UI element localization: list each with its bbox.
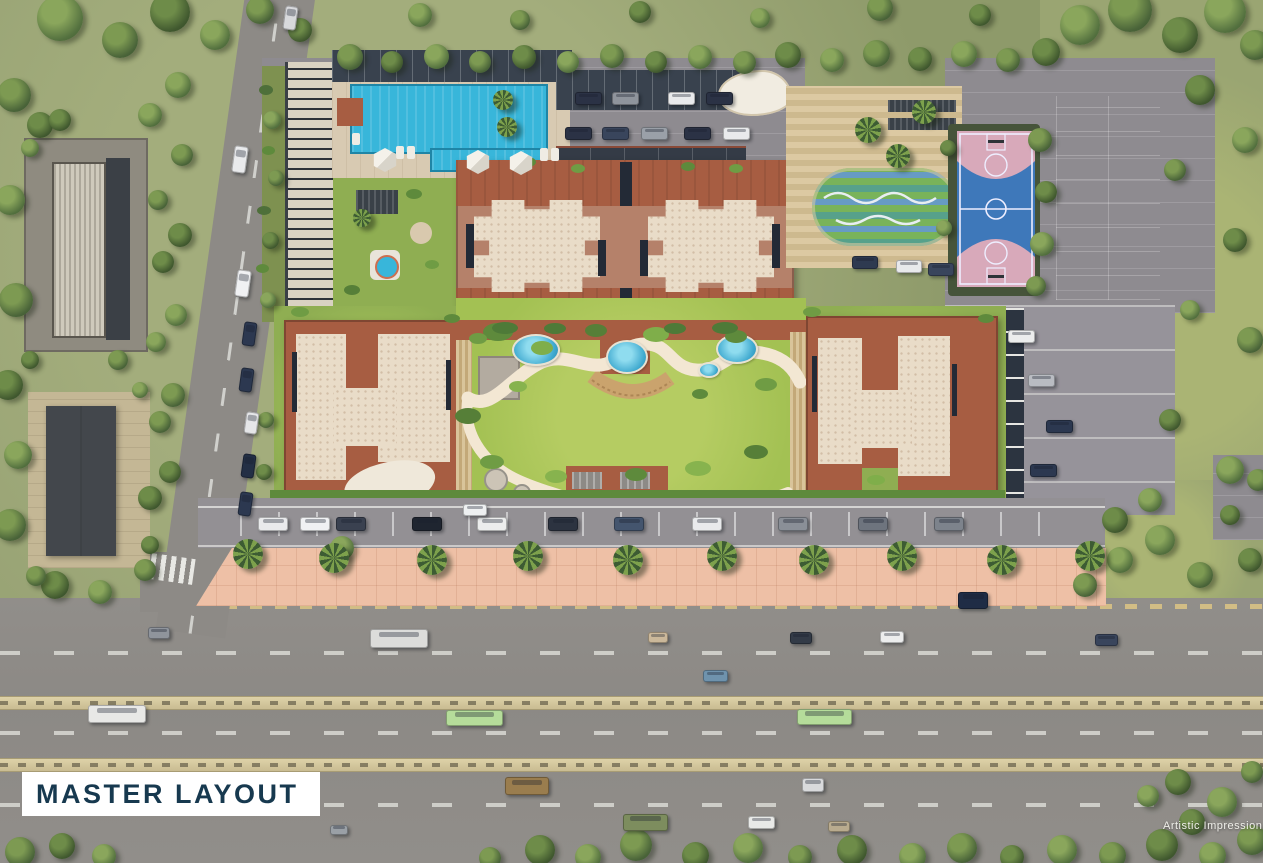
palm-tree [353,209,371,227]
vehicle [412,517,442,531]
tree [141,536,159,554]
bush [480,455,504,469]
palm-tree [497,117,517,137]
tree [512,45,536,69]
tree [134,559,156,581]
tree [165,304,187,326]
tree [645,51,667,73]
tree [1032,38,1060,66]
vehicle [703,670,728,682]
tree [969,4,991,26]
vehicle [828,821,850,832]
tree [381,51,403,73]
vehicle [1046,420,1073,433]
vehicle [336,517,366,531]
tree [867,0,893,21]
vehicle [858,517,888,531]
vehicle [300,517,330,531]
bush [531,341,553,355]
tree [951,41,977,67]
palm-tree [233,539,263,569]
bush [344,285,360,295]
palm-tree [912,100,936,124]
tree [0,370,23,400]
vehicle [330,825,348,835]
tree [1145,525,1175,555]
bush [681,162,695,171]
bush [712,322,738,334]
palm-tree [886,144,910,168]
vehicle [723,127,750,140]
tree [92,844,116,863]
vehicle [370,629,428,648]
tree [469,51,491,73]
bush [685,461,711,476]
vehicle [880,631,904,643]
vehicle [1008,330,1035,343]
vehicle [258,517,288,531]
bush [755,378,777,391]
palm-tree [799,545,829,575]
tree [908,47,932,71]
tree [21,351,39,369]
tree [1247,469,1263,491]
tree [775,42,801,68]
bush [978,314,994,323]
tree [1238,548,1262,572]
tree [510,10,530,30]
tree [629,1,651,23]
bush [469,333,487,344]
tree [102,22,138,58]
vehicle [548,517,578,531]
vehicle [684,127,711,140]
tree [1216,456,1244,484]
tree [899,843,926,863]
bush [625,468,647,481]
tree [149,411,171,433]
vehicle [238,367,254,393]
bush [545,470,567,483]
tree [1164,159,1186,181]
tree [820,48,844,72]
tree [5,837,35,863]
tree [788,845,812,863]
vehicle [648,632,668,643]
vehicle [623,814,668,831]
tree [1099,842,1126,863]
tree [0,185,25,215]
bush [509,381,527,392]
tree [1232,127,1258,153]
vehicle [477,517,507,531]
vehicle [668,92,695,105]
bush [571,164,585,173]
tree [682,842,709,863]
tree [0,78,31,112]
tree [863,40,890,67]
vehicle [614,517,644,531]
tree [150,0,190,32]
tree [263,111,281,129]
palm-tree [319,543,349,573]
sun-lounger [551,148,559,161]
bush [803,307,821,317]
vehicle [602,127,629,140]
tree [837,835,867,863]
bush [444,314,460,323]
tree [1240,30,1263,60]
vehicle [852,256,878,269]
tree [161,383,185,407]
vehicle [748,816,775,829]
tree [1026,276,1046,296]
tree [1035,181,1057,203]
bush [585,324,607,337]
tree [0,283,33,317]
palm-tree [513,541,543,571]
bush [692,389,708,399]
tree [108,350,128,370]
sun-lounger [407,146,415,159]
tree [733,51,756,74]
master-layout-label-text: MASTER LAYOUT [36,779,299,809]
tree [1159,409,1181,431]
tree [171,144,193,166]
tree [138,486,162,510]
tree [620,829,652,861]
tree [1108,0,1152,32]
tree [200,20,230,50]
tree [1220,505,1240,525]
tree [1204,0,1246,33]
vehicle [240,453,256,479]
tree [600,44,624,68]
tree [165,72,191,98]
tree [88,580,112,604]
sun-lounger [396,146,404,159]
tree [1199,842,1226,863]
tree [408,3,432,27]
vehicle [244,411,260,435]
vehicle [896,260,922,273]
tree [557,51,579,73]
palm-tree [613,545,643,575]
vehicle [958,592,988,609]
vehicle [706,92,733,105]
tree [49,833,75,859]
bush [492,322,518,334]
tree [138,103,162,127]
master-layout-aerial-render: MASTER LAYOUT Artistic Impression [0,0,1263,863]
bush [259,85,273,95]
tree [4,441,32,469]
palm-tree [855,117,881,143]
tree [996,48,1020,72]
tree [1137,785,1159,807]
bush [867,475,885,485]
tree [1165,769,1191,795]
tree [37,0,83,41]
tree [146,332,166,352]
tree [936,220,952,236]
bush [406,189,422,199]
tree [947,833,977,863]
vehicle [565,127,592,140]
tree [1187,562,1213,588]
bush [455,408,481,424]
palm-tree [707,541,737,571]
tree [262,232,279,249]
tree [1060,5,1100,45]
bush [291,307,309,317]
vehicle [1095,634,1118,646]
palm-tree [887,541,917,571]
bush [425,260,439,269]
vehicle [790,632,812,644]
tree [258,412,274,428]
tree [1207,787,1237,817]
tree [1030,232,1054,256]
tree [1107,547,1133,573]
vehicle [1030,464,1057,477]
sun-lounger [540,148,548,161]
vehicle [505,777,549,795]
tree [152,251,174,273]
bush [744,445,768,459]
vehicle [237,491,253,517]
vehicle [612,92,639,105]
palm-tree [1075,541,1105,571]
tree [148,190,168,210]
palm-tree [417,545,447,575]
pool-umbrella [508,151,534,175]
tree [26,566,46,586]
tree [1185,75,1215,105]
tree [0,509,26,541]
tree [1047,835,1077,863]
tree [688,45,712,69]
tree [479,847,501,863]
tree [525,835,555,863]
tree [733,833,763,863]
vehicle [928,263,954,276]
bush [256,264,269,273]
tree [424,44,449,69]
tree [1162,17,1198,53]
bush [262,146,275,155]
tree [268,170,284,186]
tree [260,292,276,308]
tree [1102,507,1128,533]
vehicle [802,778,824,792]
tree [1241,761,1263,783]
vehicle [446,710,503,726]
bush [664,323,686,334]
decor-layer [0,0,1263,863]
tree [1073,573,1097,597]
tree [575,844,601,863]
pool-umbrella [465,150,491,174]
vehicle [241,321,257,347]
tree [1138,488,1162,512]
tree [1223,228,1247,252]
tree [159,461,181,483]
vehicle [778,517,808,531]
tree [337,44,363,70]
vehicle [641,127,668,140]
tree [1000,845,1024,863]
vehicle [1028,374,1055,387]
sun-lounger [352,133,360,145]
tree [256,464,272,480]
vehicle [692,517,722,531]
tree [1146,829,1178,861]
artistic-impression-text: Artistic Impression [1163,820,1262,832]
vehicle [148,627,170,639]
tree [1237,327,1263,353]
palm-tree [493,90,513,110]
vehicle [934,517,964,531]
bush [729,164,743,173]
pool-umbrella [372,148,398,172]
master-layout-label: MASTER LAYOUT [22,772,320,816]
tree [168,223,192,247]
vehicle [88,705,146,723]
bush [257,206,271,215]
vehicle [575,92,602,105]
tree [940,140,956,156]
tree [750,8,770,28]
bush [544,323,566,334]
vehicle [797,709,852,725]
vehicle [234,269,252,298]
tree [1028,128,1052,152]
tree [1180,300,1200,320]
artistic-impression-watermark: Artistic Impression [1163,820,1262,832]
palm-tree [987,545,1017,575]
tree [246,0,274,24]
tree [21,139,39,157]
vehicle [463,504,487,516]
tree [132,382,148,398]
tree [49,109,71,131]
vehicle [231,145,249,174]
